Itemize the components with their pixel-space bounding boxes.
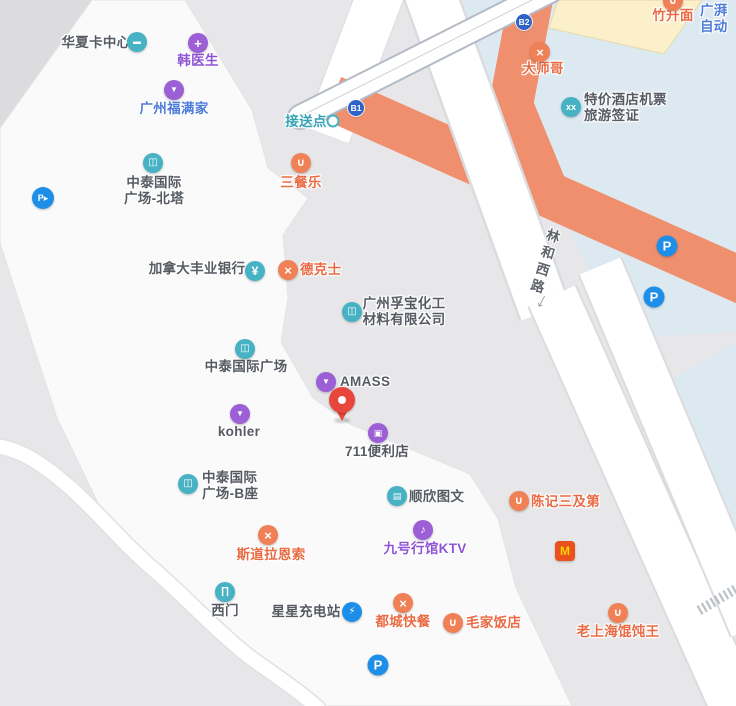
map-canvas[interactable]: 林和西路 ↓ ▬华夏卡中心+韩医生▼广州福满家◫中泰国际 广场-北塔P▸∪三餐乐… — [0, 0, 736, 706]
printer-icon-glyph: ▤ — [393, 492, 402, 501]
sancanle-label[interactable]: 三餐乐 — [280, 175, 321, 191]
shunxin-print-label[interactable]: 顺欣图文 — [409, 489, 464, 505]
kohler-label[interactable]: kohler — [218, 424, 260, 440]
scotiabank-canada-label[interactable]: 加拿大丰业银行 — [149, 261, 246, 277]
zhongtai-north-tower-label[interactable]: 中泰国际 广场-北塔 — [124, 175, 184, 207]
ducheng-fastfood-label[interactable]: 都城快餐 — [375, 614, 430, 630]
laoshanghai-wonton-label[interactable]: 老上海馄饨王 — [577, 624, 660, 640]
parking-icon-glyph: P — [374, 659, 383, 672]
ticket-icon[interactable]: xx — [561, 97, 581, 117]
mic-icon-glyph: ♪ — [420, 525, 426, 536]
building-icon[interactable]: ◫ — [178, 474, 198, 494]
bag-icon[interactable]: ▼ — [164, 80, 184, 100]
ktv-no9-label[interactable]: 九号行馆KTV — [383, 541, 466, 557]
guangpai-auto-label[interactable]: 广湃 自动 — [700, 3, 728, 35]
charging-icon[interactable]: ⚡ — [342, 602, 362, 622]
building-icon-glyph: ◫ — [183, 479, 192, 489]
bowl-icon-glyph: ∪ — [449, 618, 458, 629]
maojia-restaurant-label[interactable]: 毛家饭店 — [466, 615, 521, 631]
medical-icon-glyph: + — [194, 37, 202, 50]
dot-icon[interactable] — [327, 115, 340, 128]
gate-icon[interactable]: ∏ — [215, 582, 235, 602]
exit-b1-badge[interactable]: B1 — [348, 100, 364, 116]
briefcase-icon-glyph: ▣ — [374, 429, 383, 438]
dashige-label[interactable]: 大师哥 — [522, 61, 563, 77]
utensils-icon-glyph: × — [284, 264, 292, 277]
bowl-icon[interactable]: ∪ — [608, 603, 628, 623]
zhongtai-b-tower-label[interactable]: 中泰国际 广场-B座 — [202, 470, 258, 502]
chenji-sanjidi-label[interactable]: 陈记三及第 — [531, 494, 600, 510]
bowl-icon-glyph: ∪ — [669, 0, 678, 7]
utensils-icon[interactable]: × — [278, 260, 298, 280]
mcdonalds-icon-glyph: M — [560, 545, 570, 557]
parking-icon-glyph: P — [650, 291, 659, 304]
building-icon-glyph: ◫ — [148, 158, 157, 168]
yen-icon[interactable]: ¥ — [245, 261, 265, 281]
ticket-icon-glyph: xx — [566, 103, 576, 112]
pin-head — [329, 387, 355, 413]
stora-enso-label[interactable]: 斯道拉恩索 — [237, 547, 306, 563]
utensils-icon[interactable]: × — [258, 525, 278, 545]
fubao-chemical-label[interactable]: 广州孚宝化工 材料有限公司 — [363, 296, 446, 328]
ximen-gate-label[interactable]: 西门 — [211, 603, 239, 619]
bowl-icon[interactable]: ∪ — [443, 613, 463, 633]
parking-icon[interactable]: P — [657, 236, 678, 257]
guangzhou-fumanjia-label[interactable]: 广州福满家 — [140, 101, 209, 117]
utensils-icon-glyph: × — [399, 597, 407, 610]
dicos-label[interactable]: 德克士 — [300, 262, 341, 278]
bowl-icon[interactable]: ∪ — [291, 153, 311, 173]
bowl-icon-glyph: ∪ — [297, 158, 306, 169]
huaxia-card-center-label[interactable]: 华夏卡中心 — [62, 35, 131, 51]
medical-icon[interactable]: + — [188, 33, 208, 53]
jiesongdian-pickup-label[interactable]: 接送点 — [285, 114, 326, 130]
utensils-icon[interactable]: × — [393, 593, 413, 613]
bag-icon-glyph: ▼ — [322, 378, 330, 386]
mic-icon[interactable]: ♪ — [413, 520, 433, 540]
card-icon-glyph: ▬ — [133, 38, 141, 46]
gate-icon-glyph: ∏ — [221, 587, 229, 597]
building-icon[interactable]: ◫ — [342, 302, 362, 322]
mcdonalds-icon[interactable]: M — [555, 541, 575, 561]
parking-icon[interactable]: P — [368, 655, 389, 676]
building-icon[interactable]: ◫ — [235, 339, 255, 359]
bag-icon[interactable]: ▼ — [230, 404, 250, 424]
exit-b2-badge[interactable]: B2 — [516, 14, 532, 30]
utensils-icon-glyph: × — [536, 46, 544, 59]
bag-icon-glyph: ▼ — [236, 410, 244, 418]
building-icon-glyph: ◫ — [240, 344, 249, 354]
charging-icon-glyph: ⚡ — [348, 607, 355, 617]
card-icon[interactable]: ▬ — [127, 32, 147, 52]
tejia-hotel-tickets-label[interactable]: 特价酒店机票 旅游签证 — [584, 92, 667, 124]
xingxing-charging-label[interactable]: 星星充电站 — [272, 604, 341, 620]
printer-icon[interactable]: ▤ — [387, 486, 407, 506]
building-icon[interactable]: ◫ — [143, 153, 163, 173]
parking-icon-glyph: P — [663, 240, 672, 253]
utensils-icon-glyph: × — [264, 529, 272, 542]
building-icon-glyph: ◫ — [347, 307, 356, 317]
han-doctor-label[interactable]: 韩医生 — [177, 53, 218, 69]
parking-icon[interactable]: P — [644, 287, 665, 308]
bowl-icon[interactable]: ∪ — [509, 491, 529, 511]
bag-icon-glyph: ▼ — [170, 86, 178, 94]
zhongtai-plaza-label[interactable]: 中泰国际广场 — [205, 359, 288, 375]
utensils-icon[interactable]: × — [530, 42, 550, 62]
briefcase-icon[interactable]: ▣ — [368, 423, 388, 443]
bowl-icon-glyph: ∪ — [614, 608, 623, 619]
yen-icon-glyph: ¥ — [252, 265, 259, 277]
parking-entry-icon-glyph: P▸ — [38, 194, 49, 203]
store-711-label[interactable]: 711便利店 — [345, 444, 409, 460]
parking-entry-icon[interactable]: P▸ — [32, 187, 54, 209]
bowl-icon-glyph: ∪ — [515, 496, 524, 507]
